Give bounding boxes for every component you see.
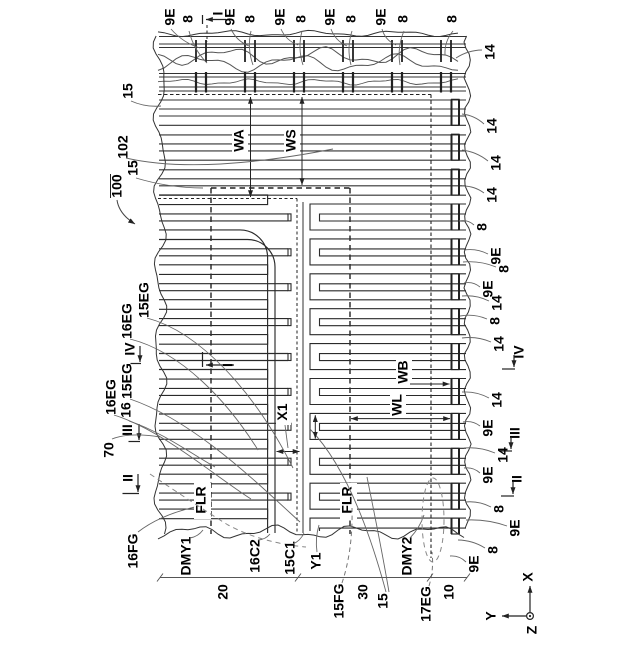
svg-text:III: III xyxy=(507,427,523,439)
svg-text:15: 15 xyxy=(120,83,136,99)
svg-text:8: 8 xyxy=(395,15,411,23)
svg-text:9E: 9E xyxy=(480,419,496,436)
svg-text:14: 14 xyxy=(489,295,505,311)
svg-text:15EG: 15EG xyxy=(119,363,135,399)
svg-text:15FG: 15FG xyxy=(331,583,347,618)
svg-text:Y: Y xyxy=(483,611,499,621)
svg-text:15: 15 xyxy=(375,593,391,609)
svg-text:8: 8 xyxy=(180,15,196,23)
svg-text:16EG: 16EG xyxy=(119,303,135,339)
svg-text:IV: IV xyxy=(122,342,138,356)
svg-text:14: 14 xyxy=(484,187,500,203)
svg-text:14: 14 xyxy=(491,336,507,352)
svg-text:9E: 9E xyxy=(466,555,482,572)
svg-text:17EG: 17EG xyxy=(418,586,434,622)
svg-text:9E: 9E xyxy=(322,8,338,25)
svg-text:8: 8 xyxy=(474,223,490,231)
svg-text:II: II xyxy=(120,474,136,482)
svg-text:WS: WS xyxy=(283,129,299,152)
svg-text:9E: 9E xyxy=(480,466,496,483)
svg-text:16EG: 16EG xyxy=(103,379,119,415)
svg-text:III: III xyxy=(119,424,135,436)
svg-text:9E: 9E xyxy=(373,8,389,25)
svg-text:WA: WA xyxy=(231,129,247,152)
svg-text:8: 8 xyxy=(487,317,503,325)
svg-text:15EG: 15EG xyxy=(136,282,152,318)
svg-text:14: 14 xyxy=(488,155,504,171)
svg-text:Y1: Y1 xyxy=(308,552,324,569)
svg-text:16: 16 xyxy=(118,402,134,418)
svg-text:WB: WB xyxy=(395,360,411,383)
svg-text:8: 8 xyxy=(242,15,258,23)
svg-text:102: 102 xyxy=(115,135,131,159)
svg-text:14: 14 xyxy=(482,44,498,60)
svg-text:10: 10 xyxy=(441,584,457,600)
svg-text:9E: 9E xyxy=(488,247,504,264)
svg-text:8: 8 xyxy=(293,15,309,23)
svg-text:II: II xyxy=(509,475,525,483)
svg-text:20: 20 xyxy=(215,584,231,600)
svg-text:9E: 9E xyxy=(507,519,523,536)
svg-text:8: 8 xyxy=(444,15,460,23)
svg-text:14: 14 xyxy=(484,118,500,134)
svg-text:9E: 9E xyxy=(222,8,238,25)
svg-text:8: 8 xyxy=(491,505,507,513)
svg-text:15: 15 xyxy=(125,160,141,176)
svg-text:Z: Z xyxy=(524,625,540,634)
svg-text:DMY1: DMY1 xyxy=(178,536,194,575)
svg-text:8: 8 xyxy=(496,265,512,273)
svg-text:14: 14 xyxy=(495,447,511,463)
svg-text:WL: WL xyxy=(389,394,405,416)
svg-text:X1: X1 xyxy=(274,403,290,420)
svg-text:15C1: 15C1 xyxy=(282,541,298,575)
svg-text:8: 8 xyxy=(485,546,501,554)
svg-text:9E: 9E xyxy=(272,8,288,25)
svg-text:FLR: FLR xyxy=(193,486,209,513)
svg-text:16C2: 16C2 xyxy=(247,539,263,573)
svg-text:30: 30 xyxy=(355,584,371,600)
svg-text:DMY2: DMY2 xyxy=(399,536,415,575)
svg-text:16FG: 16FG xyxy=(125,533,141,568)
svg-text:8: 8 xyxy=(343,15,359,23)
svg-text:9E: 9E xyxy=(480,280,496,297)
svg-text:14: 14 xyxy=(489,392,505,408)
svg-text:70: 70 xyxy=(101,442,117,458)
svg-text:100: 100 xyxy=(109,174,125,198)
svg-text:9E: 9E xyxy=(162,8,178,25)
svg-text:IV: IV xyxy=(511,345,527,359)
svg-text:X: X xyxy=(520,572,536,582)
